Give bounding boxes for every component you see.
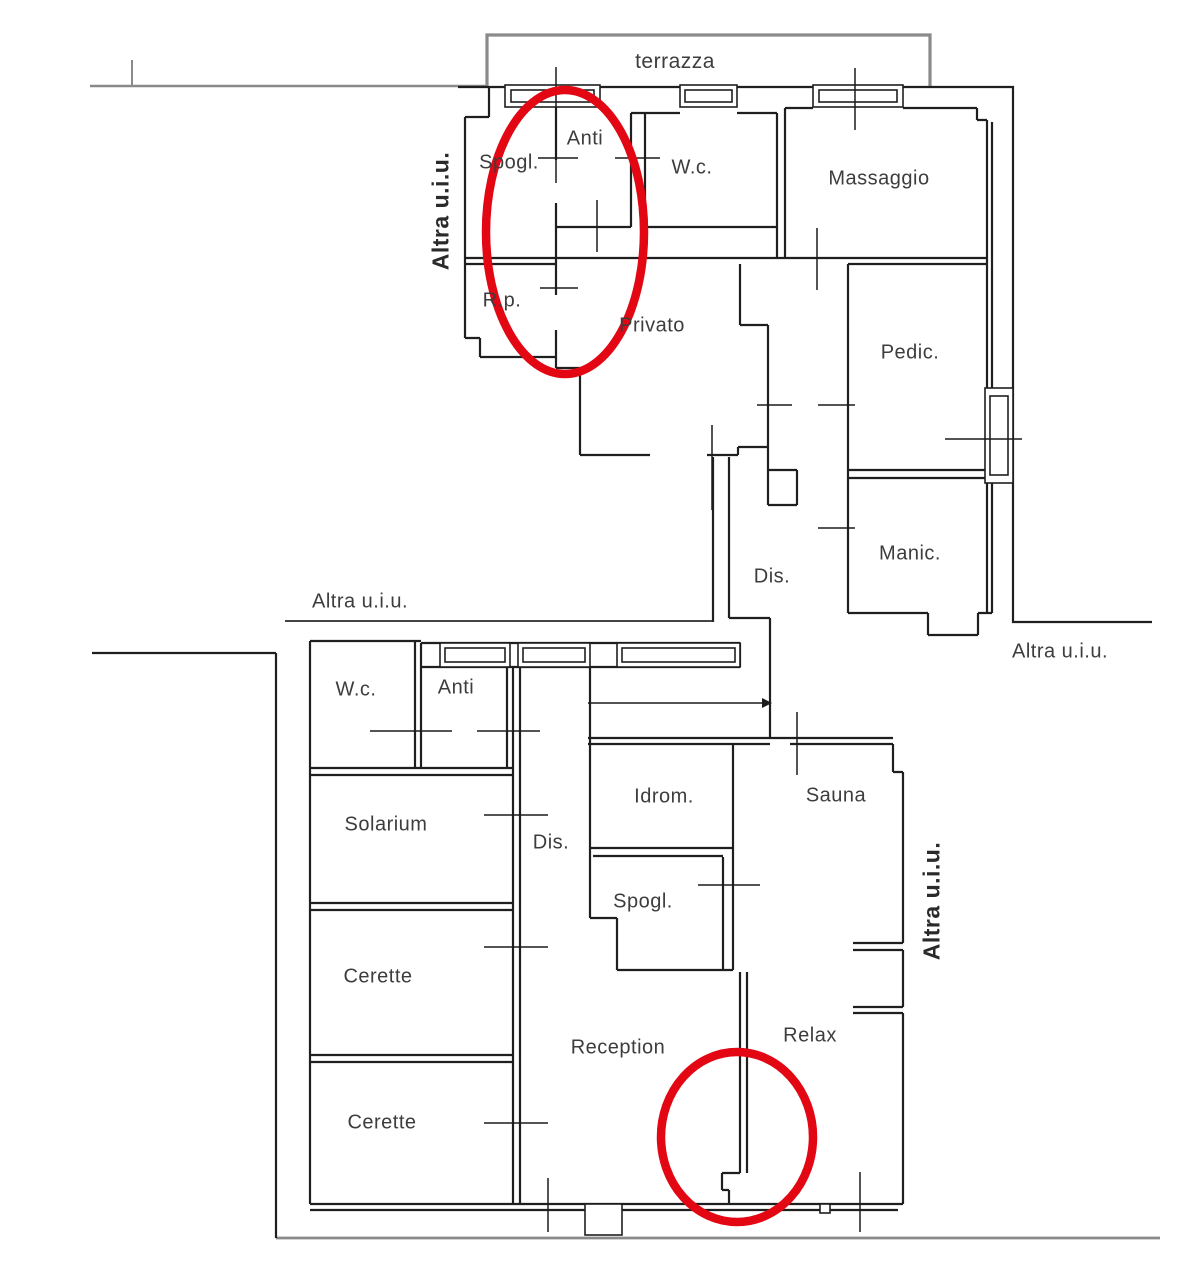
room-label-ripostiglio: R.p. [483, 290, 522, 313]
terrace-label: terrazza [635, 50, 715, 74]
window-icon [523, 648, 585, 662]
wall-notch [820, 1204, 830, 1213]
room-label-spogliatoio-upper: Spogl. [479, 152, 539, 175]
window-icon [622, 648, 735, 662]
adjacent-unit-label-left-vertical: Altra u.i.u. [428, 152, 455, 270]
room-label-sauna: Sauna [806, 785, 866, 808]
room-label-disimpegno-lower: Dis. [533, 832, 569, 855]
adjacent-unit-label-middle: Altra u.i.u. [312, 591, 408, 614]
room-label-spogliatoio-lower: Spogl. [613, 891, 673, 914]
entry-step [585, 1204, 622, 1235]
window-icon [990, 396, 1008, 475]
plan-background [0, 0, 1200, 1268]
room-label-reception: Reception [571, 1037, 666, 1060]
window-icon [819, 90, 897, 102]
room-label-privato: Privato [619, 315, 685, 338]
floor-plan-canvas [0, 0, 1200, 1268]
room-label-massaggio: Massaggio [828, 168, 929, 191]
floor-plan-page: terrazza Altra u.i.u. Altra u.i.u. Altra… [0, 0, 1200, 1268]
room-label-wc-lower: W.c. [336, 679, 377, 702]
room-label-cerette-1: Cerette [343, 966, 412, 989]
room-label-anti-upper: Anti [567, 128, 603, 151]
room-label-wc-upper: W.c. [672, 157, 713, 180]
window-icon [445, 648, 505, 662]
room-label-idromassaggio: Idrom. [634, 786, 694, 809]
room-label-relax: Relax [783, 1025, 837, 1048]
room-label-disimpegno-upper: Dis. [754, 566, 790, 589]
room-label-anti-lower: Anti [438, 677, 474, 700]
adjacent-unit-label-right: Altra u.i.u. [1012, 641, 1108, 664]
adjacent-unit-label-right-vertical: Altra u.i.u. [919, 842, 946, 960]
window-icon [685, 90, 732, 102]
room-label-cerette-2: Cerette [347, 1112, 416, 1135]
room-label-pedicure: Pedic. [881, 342, 940, 365]
room-label-solarium: Solarium [345, 814, 428, 837]
room-label-manicure: Manic. [879, 543, 941, 566]
